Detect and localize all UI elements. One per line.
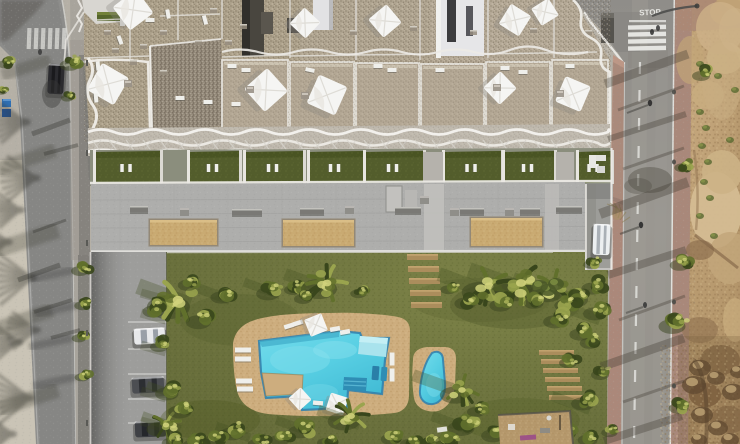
svg-text:STOP: STOP [639,8,662,18]
